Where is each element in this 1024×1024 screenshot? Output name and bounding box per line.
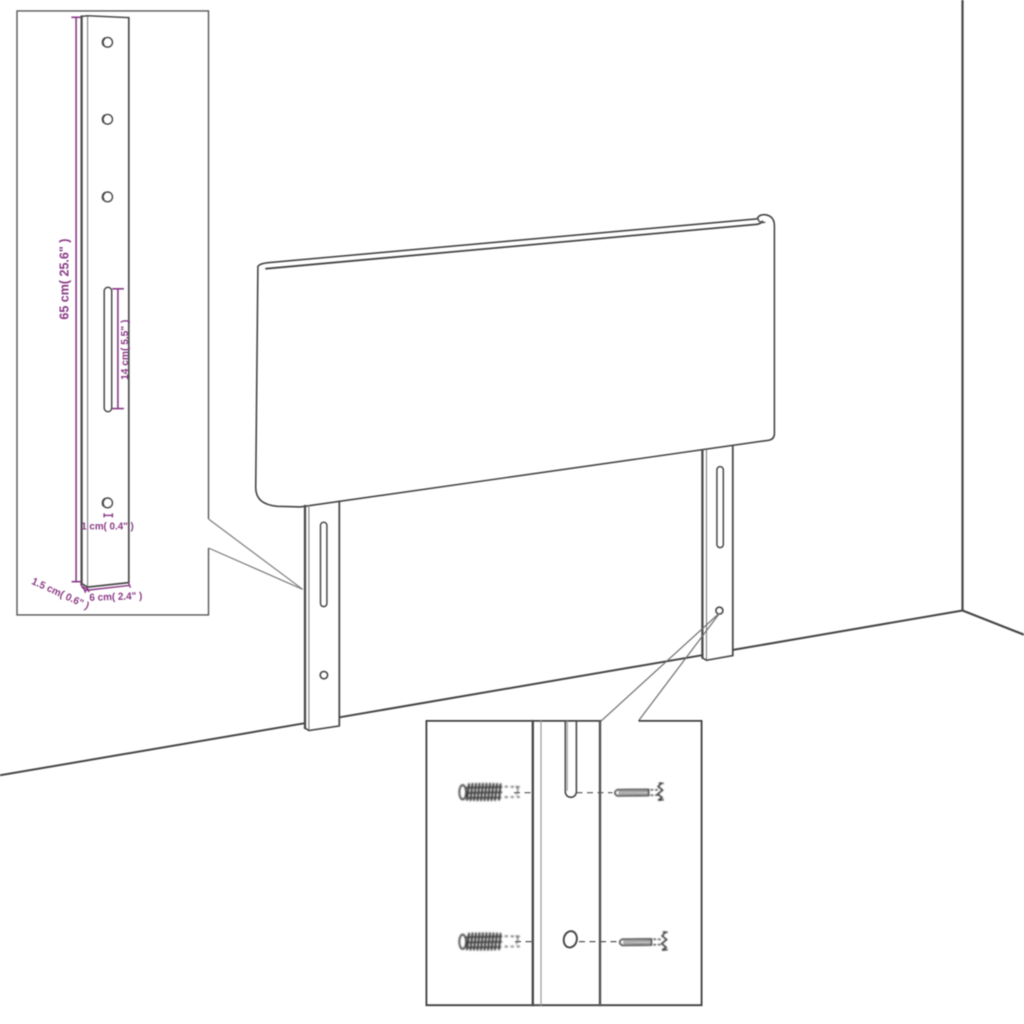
svg-text:14 cm( 5.5" ): 14 cm( 5.5" ) — [120, 320, 131, 380]
svg-text:1 cm( 0.4" ): 1 cm( 0.4" ) — [81, 521, 134, 532]
svg-text:6 cm( 2.4" ): 6 cm( 2.4" ) — [89, 591, 142, 604]
svg-text:65 cm( 25.6" ): 65 cm( 25.6" ) — [57, 239, 71, 320]
